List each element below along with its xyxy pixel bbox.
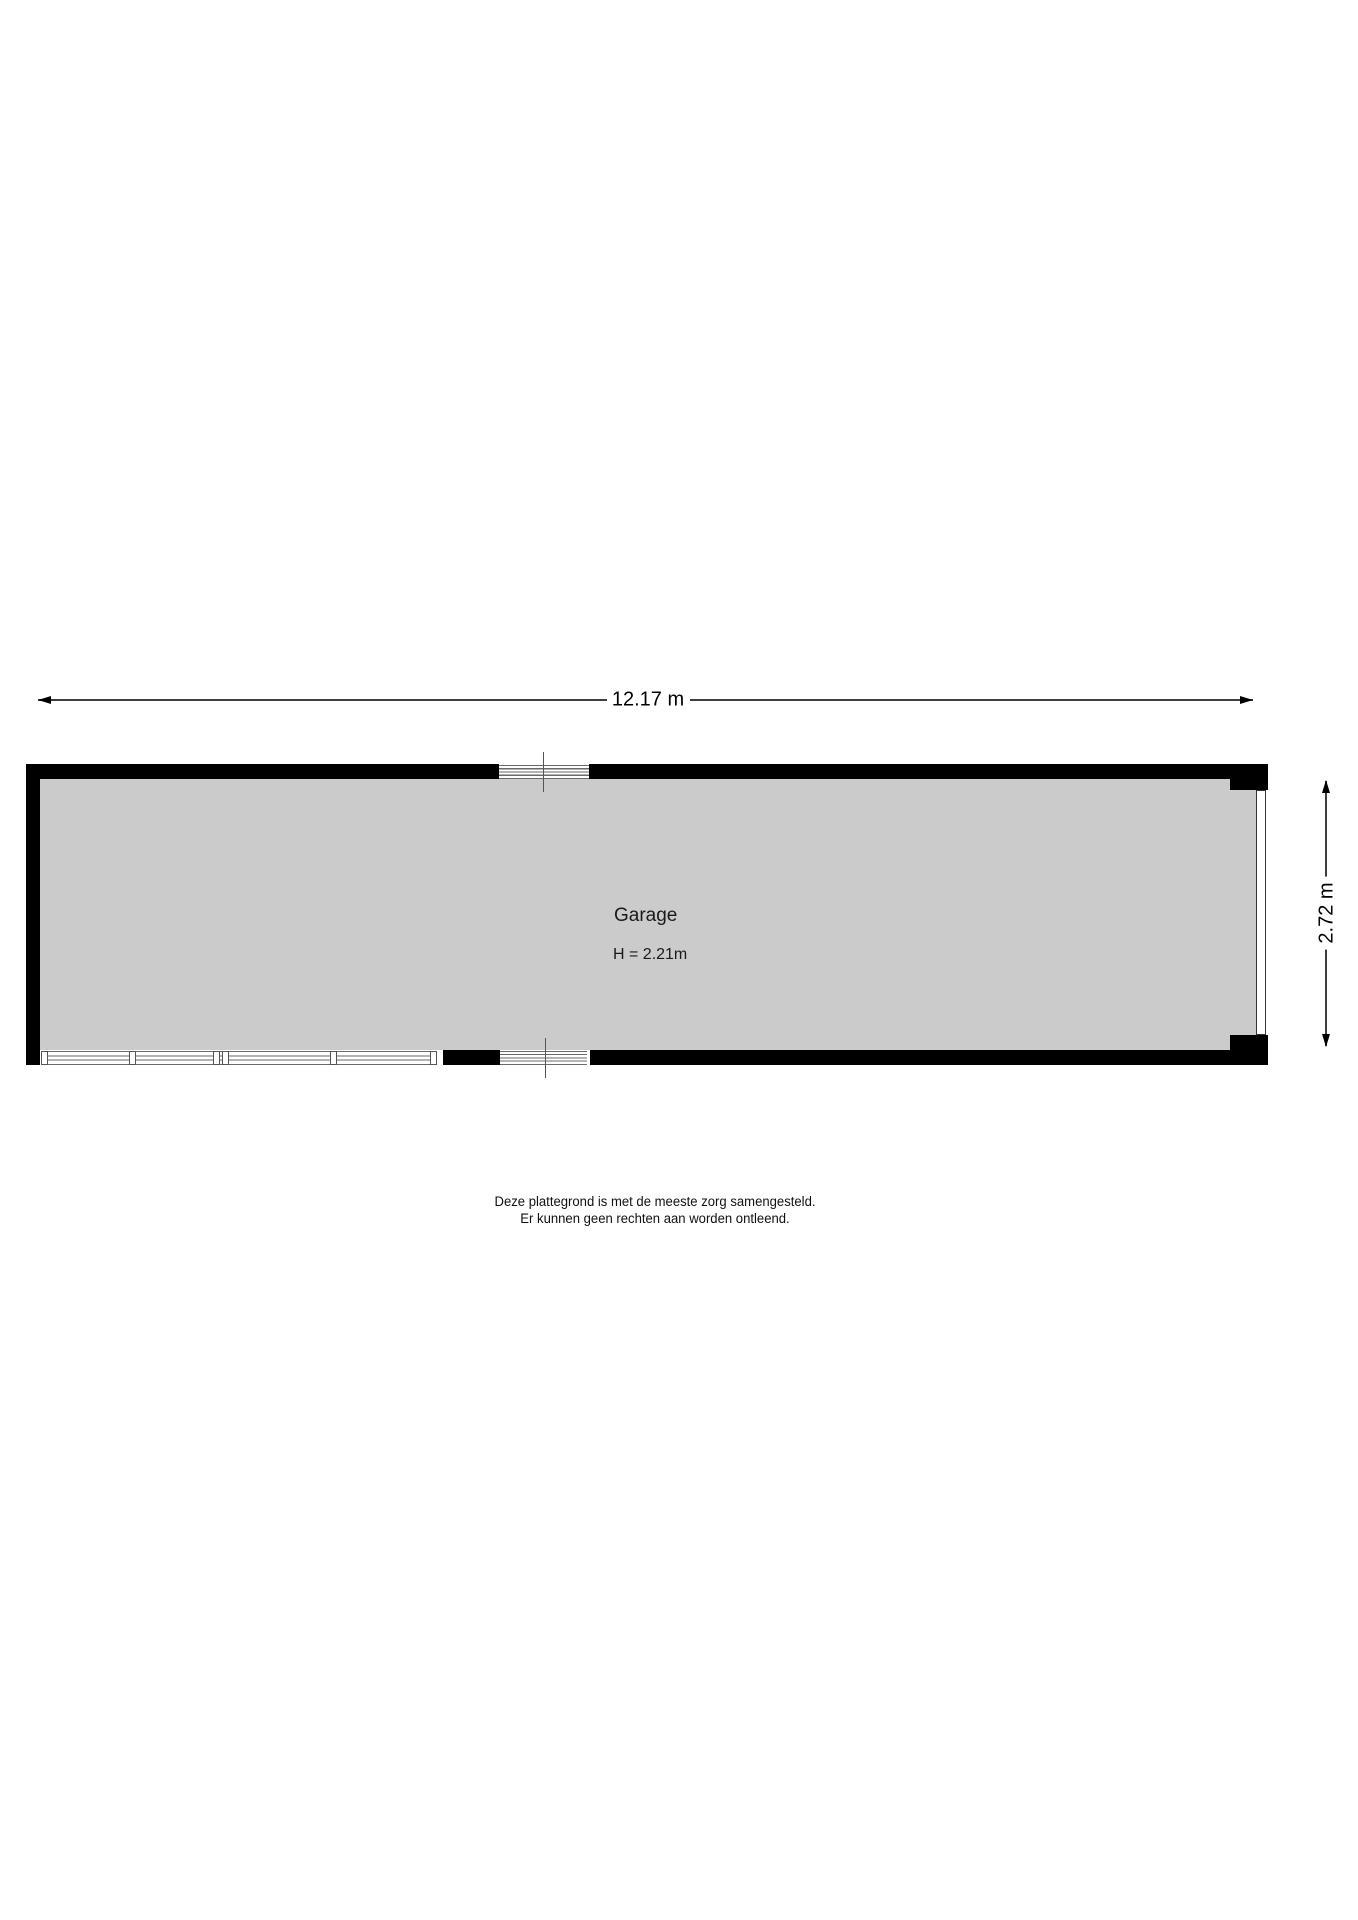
height-dimension-label: 2.72 m bbox=[1316, 876, 1339, 949]
wall-top-right-segment bbox=[589, 764, 1268, 779]
room-label: Garage bbox=[614, 905, 677, 927]
disclaimer: Deze plattegrond is met de meeste zorg s… bbox=[20, 1193, 1291, 1227]
window-mullion bbox=[330, 1051, 337, 1065]
width-dimension-line-left bbox=[38, 699, 607, 701]
window-mullion bbox=[41, 1051, 48, 1065]
corner-post-bottom-right bbox=[1230, 1035, 1268, 1065]
window-strip-bottom-left bbox=[41, 1051, 437, 1065]
window-bottom-center-tick bbox=[545, 1038, 546, 1078]
window-mullion bbox=[129, 1051, 136, 1065]
wall-bottom-right-segment bbox=[590, 1050, 1268, 1065]
window-bottom-middle bbox=[500, 1051, 587, 1065]
wall-top-left-segment bbox=[26, 764, 499, 779]
width-dimension-arrow-left-icon bbox=[38, 696, 51, 704]
wall-bottom-middle-segment bbox=[443, 1050, 500, 1065]
window-top bbox=[499, 765, 589, 779]
height-dimension-line-bottom bbox=[1325, 947, 1327, 1046]
disclaimer-line-2: Er kunnen geen rechten aan worden ontlee… bbox=[20, 1210, 1291, 1227]
wall-left bbox=[26, 764, 40, 1065]
floor-plan-page: 12.17 m 2.72 m Garage H = 2.21m Deze pla… bbox=[0, 0, 1358, 1920]
window-mullion bbox=[222, 1051, 229, 1065]
width-dimension-line-right bbox=[690, 699, 1253, 701]
height-dimension-arrow-up-icon bbox=[1322, 780, 1330, 793]
width-dimension-label: 12.17 m bbox=[608, 689, 688, 712]
window-right bbox=[1256, 790, 1266, 1035]
width-dimension-arrow-right-icon bbox=[1240, 696, 1253, 704]
height-dimension-line-top bbox=[1325, 781, 1327, 880]
disclaimer-line-1: Deze plattegrond is met de meeste zorg s… bbox=[20, 1193, 1291, 1210]
window-mullion bbox=[430, 1051, 437, 1065]
window-top-center-tick bbox=[543, 752, 544, 792]
window-mullion bbox=[213, 1051, 220, 1065]
corner-post-top-right bbox=[1230, 764, 1268, 790]
room-height-label: H = 2.21m bbox=[613, 946, 687, 964]
height-dimension-arrow-down-icon bbox=[1322, 1034, 1330, 1047]
